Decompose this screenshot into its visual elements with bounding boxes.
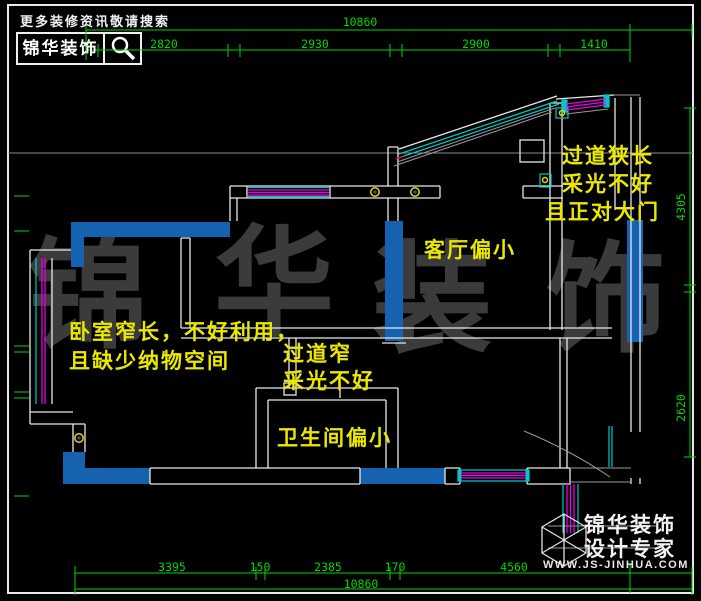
annotation-corridor-line2: 采光不好 [283, 365, 375, 395]
dim-top-seg: 2820 [138, 37, 190, 51]
dim-top-seg: 2930 [289, 37, 341, 51]
dim-right-seg: 4305 [674, 187, 688, 227]
annotation-bedroom-line2: 且缺少纳物空间 [69, 345, 230, 375]
annotation-entry-line3: 且正对大门 [545, 196, 660, 226]
annotation-entry-line1: 过道狭长 [562, 140, 654, 170]
annotation-entry-line2: 采光不好 [562, 168, 654, 198]
annotation-bedroom-line1: 卧室窄长，不好利用， [69, 316, 299, 346]
left-dimension-ticks [14, 196, 29, 496]
dim-top-total: 10860 [325, 15, 395, 29]
drawing-frame [8, 5, 693, 593]
dim-bottom-seg: 4560 [488, 560, 540, 574]
window-cyan-lines [36, 95, 612, 533]
dim-bottom-seg: 150 [240, 560, 280, 574]
annotation-corridor-line1: 过道窄 [283, 338, 352, 368]
annotation-bathroom: 卫生间偏小 [277, 422, 392, 452]
column [520, 140, 544, 162]
dim-right-seg: 2620 [674, 388, 688, 428]
search-icon [113, 38, 134, 59]
floor-plan-page: 锦 华 装 饰 [0, 0, 701, 601]
dim-bottom-seg: 170 [375, 560, 415, 574]
dim-top-seg: 1410 [568, 37, 620, 51]
promo-tagline: 更多装修资讯敬请搜索 [20, 11, 170, 30]
switch-icon [543, 178, 548, 183]
dim-bottom-seg: 2385 [302, 560, 354, 574]
annotation-living-room: 客厅偏小 [424, 234, 516, 264]
dim-top-seg: 2900 [450, 37, 502, 51]
reference-mark [396, 156, 404, 159]
dim-bottom-total: 10860 [326, 577, 396, 591]
footer-website: WWW.JS-JINHUA.COM [543, 559, 689, 571]
brand-logo-text: 锦华装饰 [17, 33, 104, 64]
dim-bottom-seg: 3395 [142, 560, 202, 574]
